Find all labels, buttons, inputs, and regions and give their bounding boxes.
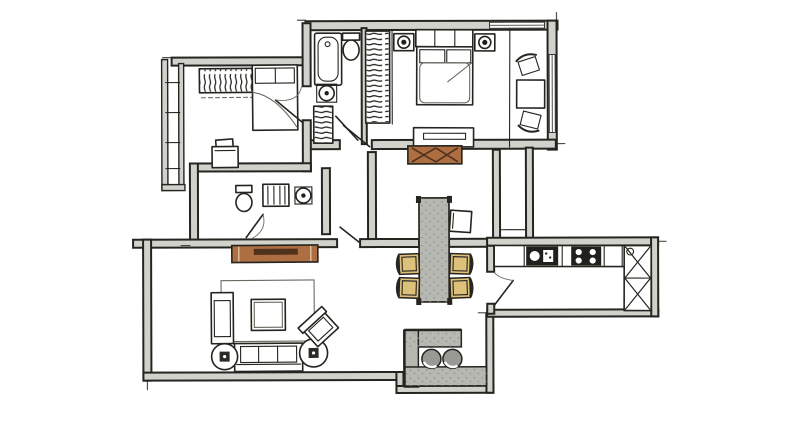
wall-kitchen-left-upper	[487, 246, 494, 272]
nightstand-right	[475, 34, 495, 51]
room-balcony-bar	[404, 330, 486, 387]
toilet-middle	[236, 185, 252, 211]
window-master-right	[549, 55, 555, 133]
wall-hall-dining	[368, 152, 376, 240]
chair-tan	[450, 277, 473, 298]
nook-chair-top	[515, 52, 542, 76]
lounge-chair	[211, 293, 233, 344]
window-table	[515, 52, 545, 134]
wall-bath-middle-left	[190, 164, 198, 248]
floor-plan-drawing	[0, 0, 800, 422]
nightstand-left	[394, 34, 414, 51]
dining-area	[397, 196, 473, 305]
nook-chair-bottom	[517, 111, 543, 134]
chair-tan	[397, 278, 420, 299]
room-bathroom-middle	[236, 184, 312, 239]
room-bedroom-small	[199, 65, 302, 168]
single-bed	[252, 65, 298, 130]
cooktop	[571, 247, 601, 266]
door-bathroom-middle	[246, 214, 264, 238]
wall-shaft-right	[526, 148, 533, 240]
wall-shaft-left	[493, 150, 500, 240]
double-bed	[416, 30, 473, 105]
wall-kitchen-top	[487, 237, 658, 245]
head-chair	[449, 210, 471, 232]
coffee-table	[251, 299, 285, 330]
wall-living-top-mid	[360, 239, 419, 247]
door-kitchen	[494, 272, 513, 305]
room-living	[211, 245, 341, 372]
wall-kitchen-left-lower	[487, 304, 494, 314]
washbasin-middle	[295, 187, 312, 204]
bar-stool-left	[422, 349, 441, 368]
room-walk-in-closet	[366, 30, 393, 124]
dresser	[414, 128, 474, 147]
linen-shelf	[314, 106, 333, 143]
wall-bar-right	[486, 314, 493, 393]
sideboard-wood	[232, 245, 318, 263]
wall-living-bottom	[143, 372, 403, 381]
closet-hanging-rail-fill	[367, 32, 389, 122]
room-bathroom-top	[314, 33, 360, 143]
balcony-wall-outer	[162, 60, 168, 190]
toilet-top	[343, 33, 360, 60]
chair-tan	[397, 254, 420, 275]
balcony-wall-cap	[162, 185, 185, 191]
wall-bath-middle-right	[322, 168, 330, 234]
desk-with-chair	[212, 139, 238, 168]
door-hall-living	[340, 227, 359, 242]
hallway-console	[408, 146, 462, 164]
room-kitchen	[494, 245, 651, 310]
bathtub	[315, 33, 342, 85]
window-master-top	[490, 22, 545, 28]
sink-unit	[526, 247, 558, 266]
side-table-left	[212, 344, 238, 370]
wall-living-top-right	[449, 239, 492, 247]
floor-plan-canvas	[0, 0, 800, 422]
shower-appliance-box	[263, 184, 289, 206]
wall-living-left	[143, 240, 151, 381]
dining-table	[416, 196, 452, 305]
wall-bath-top-left-upper	[303, 23, 311, 86]
sofa	[235, 343, 303, 372]
washbasin-top	[317, 84, 337, 102]
wall-kitchen-right	[651, 237, 658, 316]
tall-cabinet-x	[624, 246, 651, 311]
bar-stool-right	[443, 349, 462, 368]
chair-tan	[450, 254, 473, 275]
